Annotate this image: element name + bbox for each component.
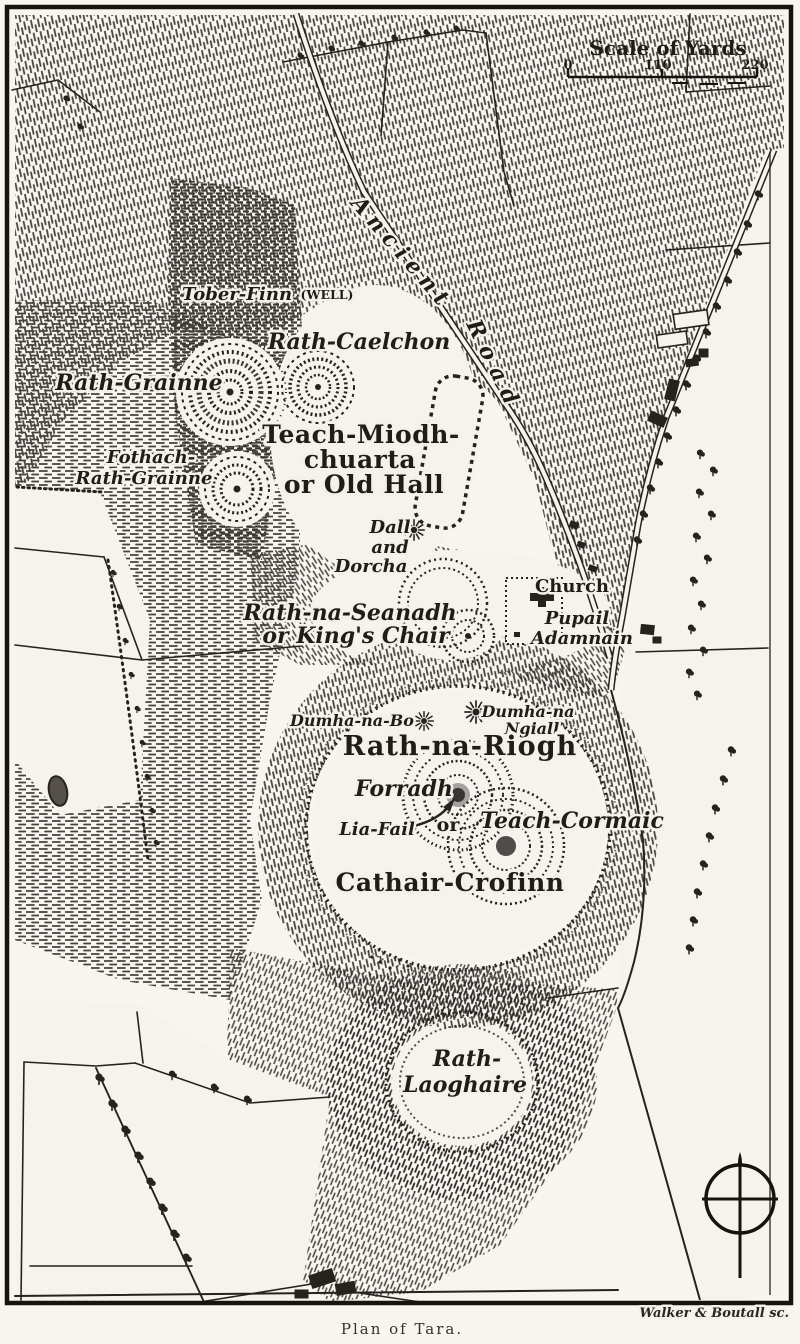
label-pupail-line2: Adamnain [529, 628, 633, 649]
label-rath-laoghaire-line2: Laoghaire [402, 1072, 527, 1098]
label-cathair-crofinn: Cathair-Crofinn [336, 868, 565, 897]
label-lia-fail: Lia-Fail [338, 819, 415, 840]
label-dall-line2: and [371, 537, 409, 558]
label-rath-laoghaire-line1: Rath- [432, 1046, 501, 1072]
label-teach-miodhchuarta-line3: or Old Hall [284, 470, 444, 499]
label-pupail-line1: Pupail [544, 608, 610, 629]
label-tober-finn-well: (WELL) [301, 287, 354, 302]
scale-title: Scale of Yards [589, 36, 746, 60]
label-tober-finn: Tober-Finn [182, 284, 292, 305]
label-or-connector: or [437, 814, 461, 836]
label-teach-cormaic: Teach-Cormaic [480, 808, 664, 834]
figure-caption: Plan of Tara. [341, 1320, 463, 1338]
label-rath-na-riogh: Rath-na-Riogh [343, 731, 577, 762]
scale-tick-220: 220 [741, 58, 768, 73]
label-forradh: Forradh [354, 776, 453, 802]
label-fothach-line2: Rath-Grainne [75, 468, 213, 489]
label-dall-line3: Dorcha [334, 556, 408, 577]
plan-of-tara-map-page: Scale of Yards 0 110 220 Ancient Road To… [0, 0, 800, 1344]
scale-tick-110: 110 [644, 58, 671, 73]
label-church: Church [535, 576, 609, 597]
label-rath-caelchon: Rath-Caelchon [267, 329, 451, 355]
label-dall-line1: Dall [369, 517, 411, 538]
engraver-credit: Walker & Boutall sc. [640, 1306, 789, 1321]
label-dumha-na-bo: Dumha-na-Bo [289, 711, 414, 730]
map-engraving: Scale of Yards 0 110 220 Ancient Road To… [0, 0, 800, 1344]
label-fothach-line1: Fothach- [106, 447, 195, 468]
label-rath-na-seanadh-line2: or King's Chair [262, 623, 451, 649]
label-rath-grainne: Rath-Grainne [54, 370, 222, 396]
